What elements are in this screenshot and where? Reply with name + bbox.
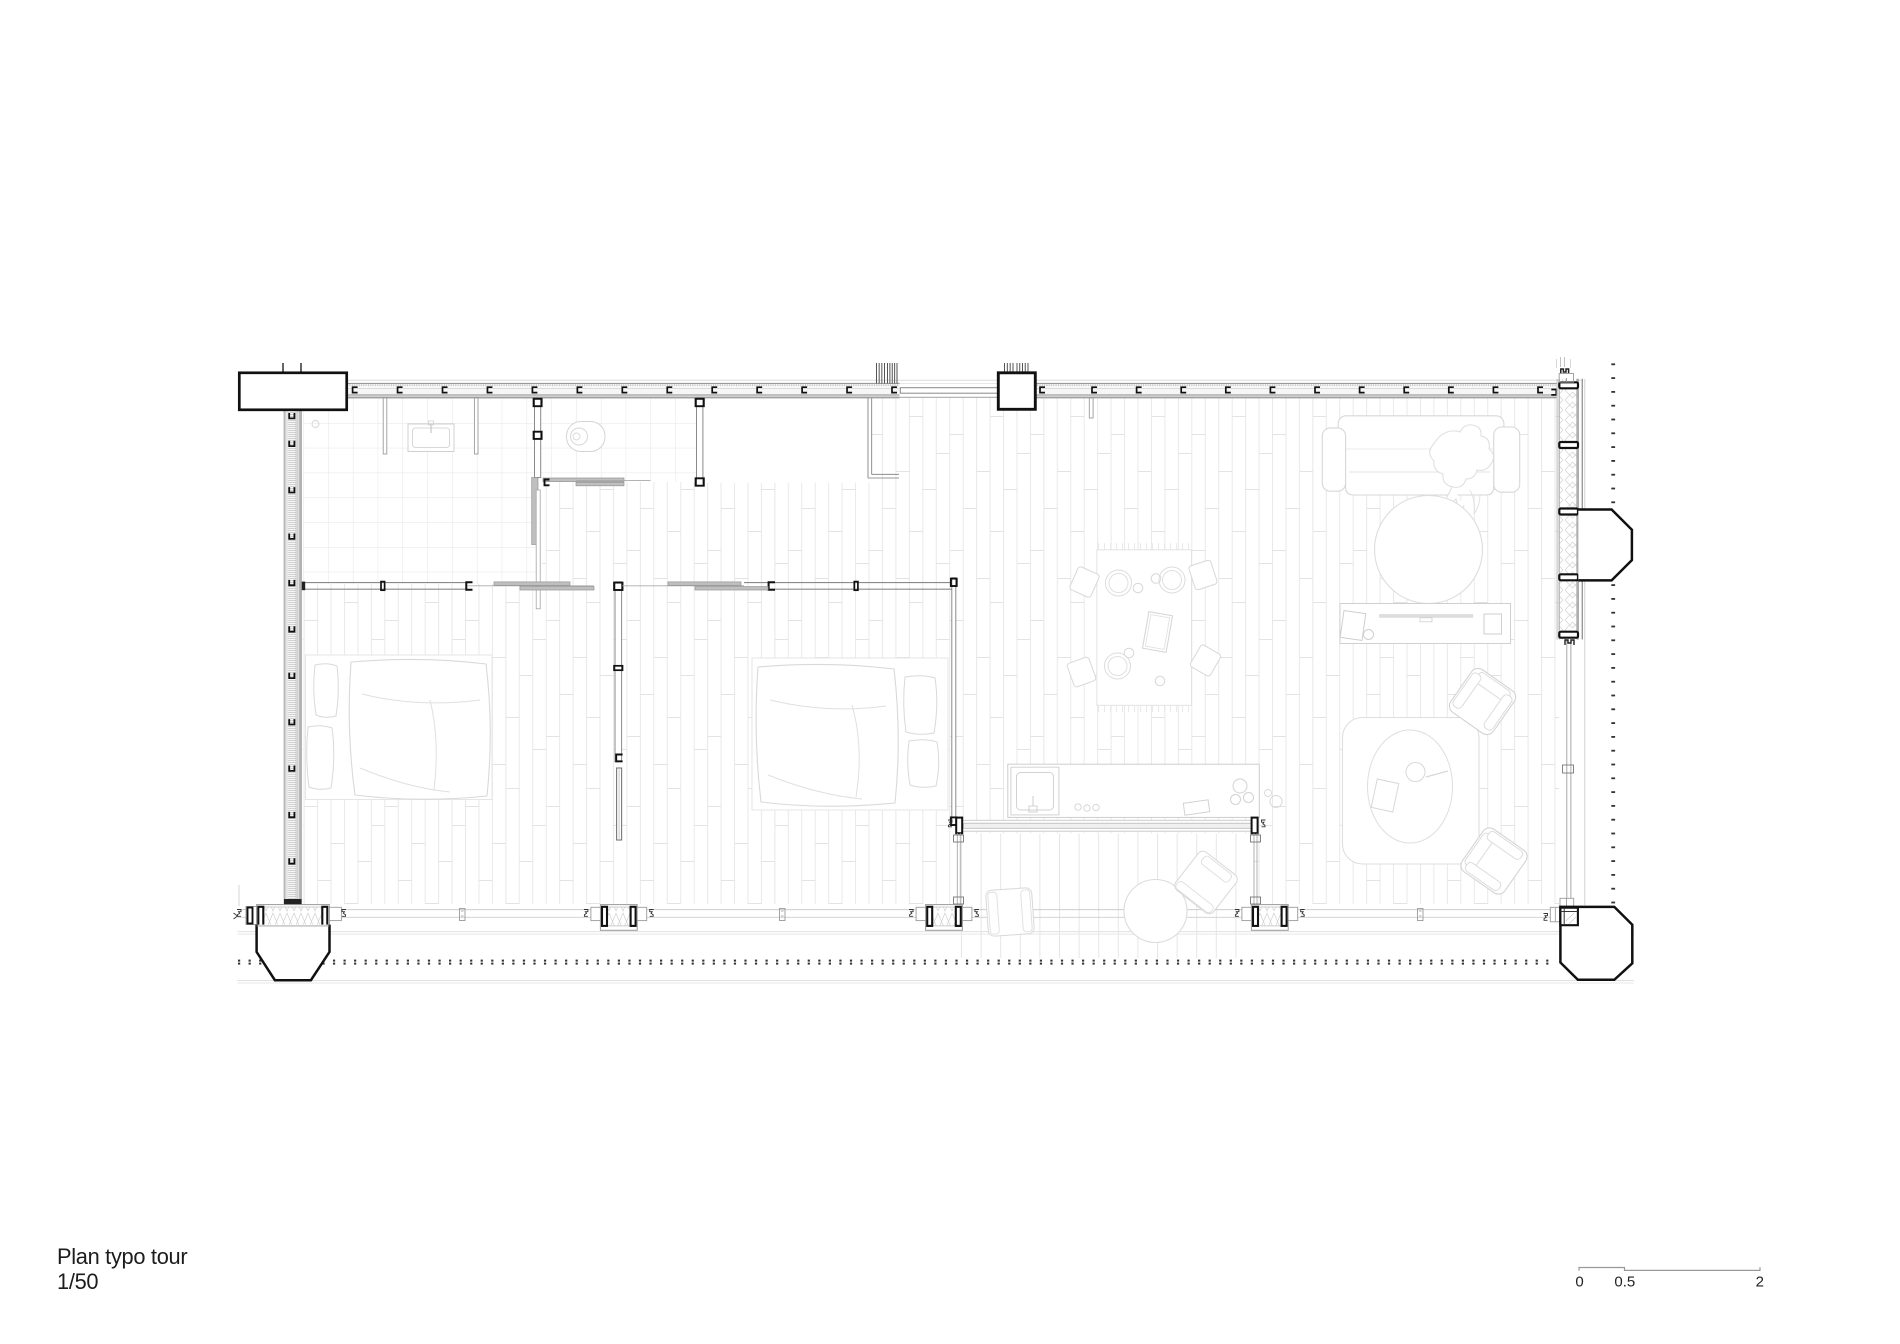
svg-text:0.5: 0.5 <box>1614 1274 1635 1291</box>
svg-text:0: 0 <box>1575 1274 1583 1291</box>
svg-text:2: 2 <box>1756 1274 1764 1291</box>
